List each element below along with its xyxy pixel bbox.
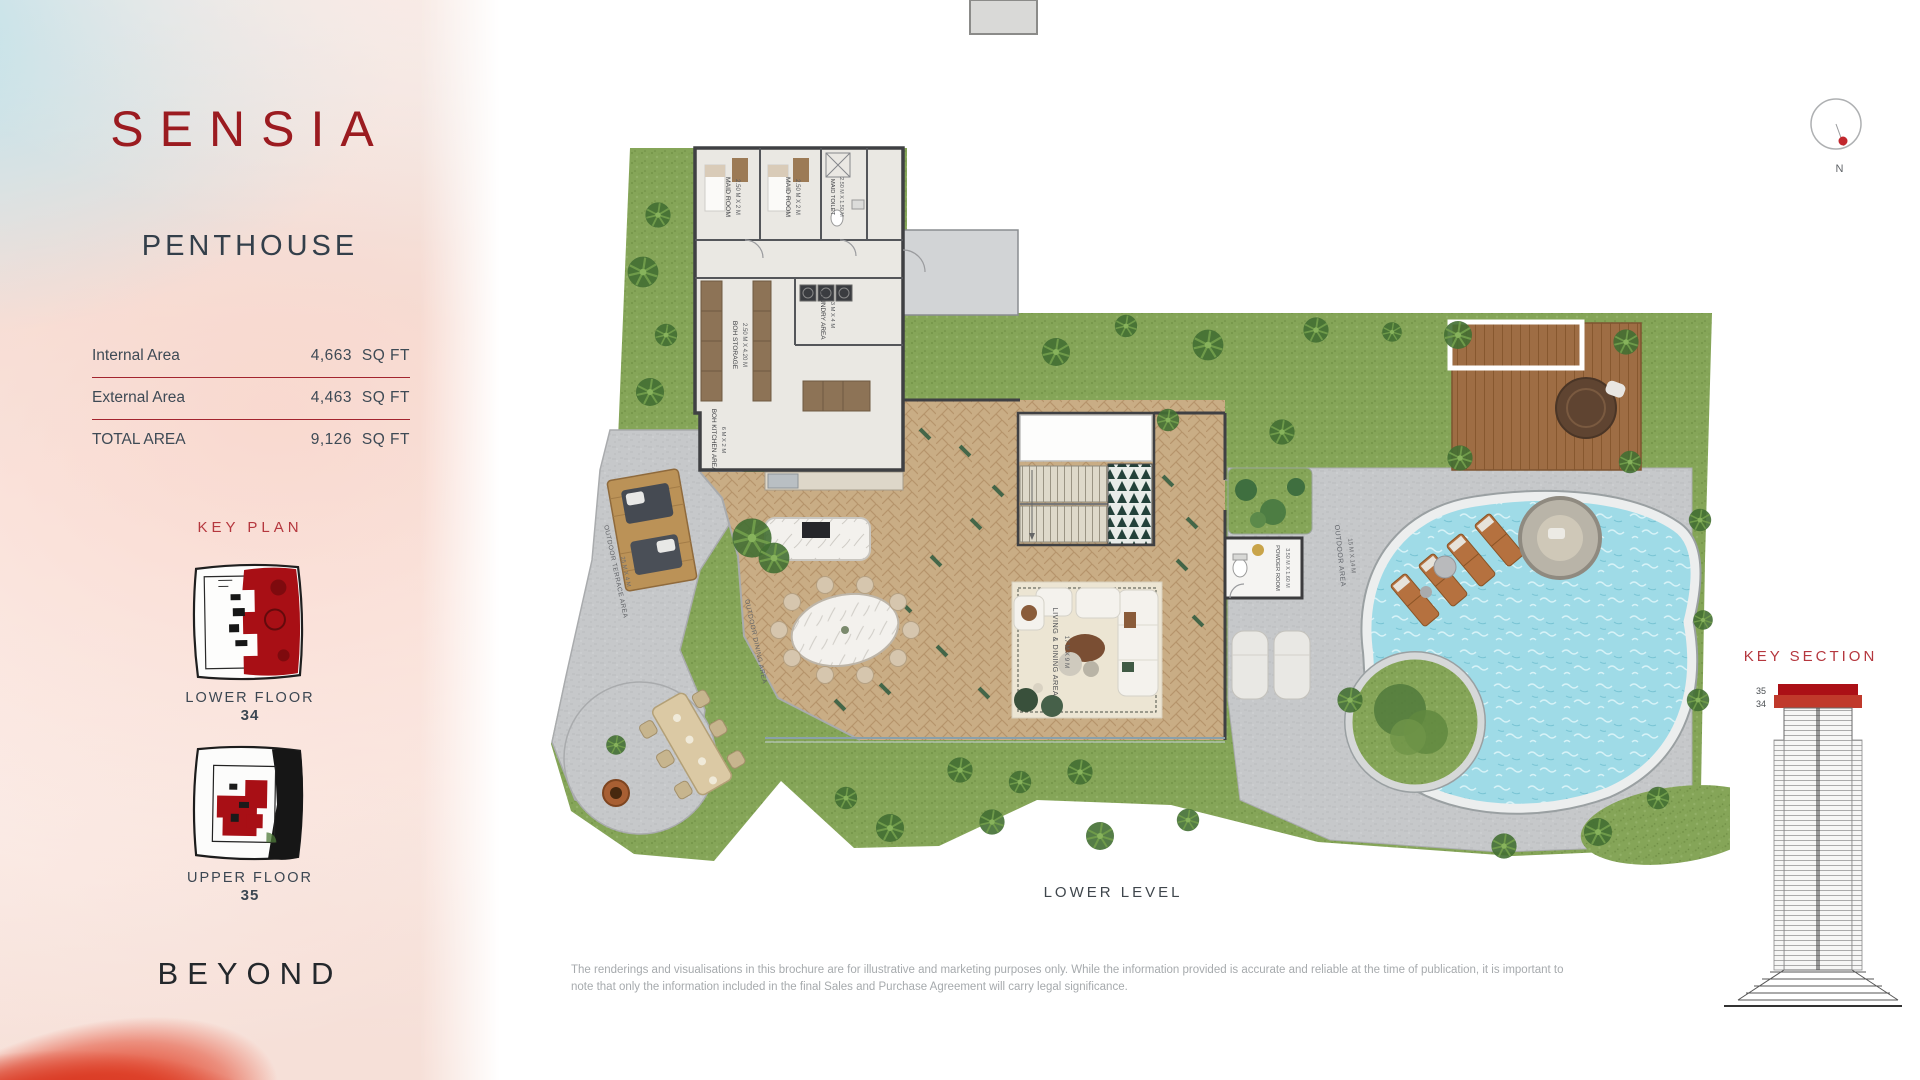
room-dims-maid-toilet: 2.50 M X 1.50 M <box>838 177 844 217</box>
key-plan-upper-thumbnail <box>183 744 313 864</box>
room-label-maid-2: MAID ROOM <box>784 177 791 217</box>
compass-north-label: N <box>1836 163 1845 175</box>
tower-podium <box>1738 970 1898 1000</box>
area-label: TOTAL AREA <box>92 431 311 449</box>
room-dims-boh-kitchen: 6 M X 2 M <box>720 427 726 454</box>
wood-deck <box>1450 322 1641 470</box>
room-dims-maid-2: 2.50 M X 2 M <box>794 179 800 215</box>
room-label-maid-1: MAID ROOM <box>724 177 731 217</box>
room-dims-living-dining: 17 M X 9 M <box>1063 636 1070 669</box>
footer-wordmark: BEYOND <box>0 956 500 992</box>
key-plan-lower-label: LOWER FLOOR <box>0 690 500 706</box>
room-label-boh-storage: BOH STORAGE <box>731 321 738 370</box>
tower-floor-35: 35 <box>1756 686 1766 696</box>
penthouse-highlight <box>1778 684 1858 695</box>
pool-side-table <box>1434 556 1456 578</box>
key-section-tower: 35 34 <box>1718 676 1908 1016</box>
key-plan-upper-label: UPPER FLOOR <box>0 870 500 886</box>
area-value: 4,663 <box>311 347 352 365</box>
room-label-powder: POWDER ROOM <box>1274 545 1280 591</box>
room-label-living-dining: LIVING & DINING AREA <box>1051 608 1060 697</box>
watercolor-splash-2 <box>0 1010 390 1080</box>
key-plan-heading: KEY PLAN <box>0 519 500 536</box>
area-row-total: TOTAL AREA 9,126 SQ FT <box>92 420 410 461</box>
plan-caption: LOWER LEVEL <box>963 884 1263 901</box>
hedge <box>1228 468 1312 534</box>
compass-needle-dot <box>1839 137 1848 146</box>
upper-structure <box>970 0 1037 34</box>
page: SENSIA PENTHOUSE Internal Area 4,663 SQ … <box>0 0 1920 1080</box>
powder-room: POWDER ROOM 3.50 M X 1.60 M <box>1225 538 1302 598</box>
area-table: Internal Area 4,663 SQ FT External Area … <box>92 336 410 461</box>
wc <box>1233 559 1247 577</box>
room-dims-laundry: 3 M X 4 M <box>829 302 835 329</box>
floor-plan: OUTDOOR TERRACE AREA 25 M X 4 M OUTDOOR … <box>540 0 1730 900</box>
area-label: External Area <box>92 389 311 407</box>
pouf <box>1041 695 1063 717</box>
area-unit: SQ FT <box>352 431 410 449</box>
tower-floor-34: 34 <box>1756 699 1766 709</box>
compass-icon: N <box>1796 90 1880 182</box>
area-value: 4,463 <box>311 389 352 407</box>
disclaimer-text: The renderings and visualisations in thi… <box>571 962 1566 996</box>
key-plan-lower-thumbnail <box>183 560 313 684</box>
staircase <box>1018 413 1154 545</box>
area-row-internal: Internal Area 4,663 SQ FT <box>92 336 410 378</box>
living-area <box>1012 582 1162 718</box>
key-section-heading: KEY SECTION <box>1738 648 1883 665</box>
building: MAID ROOM 2.50 M X 2 M MAID ROOM 2.50 M … <box>695 148 925 472</box>
area-value: 9,126 <box>311 431 352 449</box>
room-dims-boh-storage: 2.50 M X 4.20 M <box>741 323 747 367</box>
sidebar: SENSIA PENTHOUSE Internal Area 4,663 SQ … <box>0 0 500 1080</box>
room-label-maid-toilet: MAID TOILET <box>829 179 835 216</box>
key-plan-lower-number: 34 <box>0 707 500 724</box>
area-label: Internal Area <box>92 347 311 365</box>
brand-logo: SENSIA <box>0 100 500 158</box>
key-plan-upper-number: 35 <box>0 887 500 904</box>
room-label-boh-kitchen: BOH KITCHEN AREA <box>710 409 717 472</box>
page-title: PENTHOUSE <box>0 230 500 263</box>
pool-daybed <box>1520 498 1600 578</box>
gold-mirror <box>1252 544 1264 556</box>
room-dims-powder: 3.50 M X 1.60 M <box>1284 548 1290 588</box>
area-unit: SQ FT <box>352 347 410 365</box>
room-label-laundry: LAUNDRY AREA <box>819 290 826 340</box>
sofa <box>1118 590 1158 696</box>
area-unit: SQ FT <box>352 389 410 407</box>
room-dims-maid-1: 2.50 M X 2 M <box>734 179 740 215</box>
pool-planter <box>1345 652 1485 792</box>
entry-landing <box>903 230 1018 315</box>
pouf <box>1014 688 1038 712</box>
area-row-external: External Area 4,463 SQ FT <box>92 378 410 420</box>
